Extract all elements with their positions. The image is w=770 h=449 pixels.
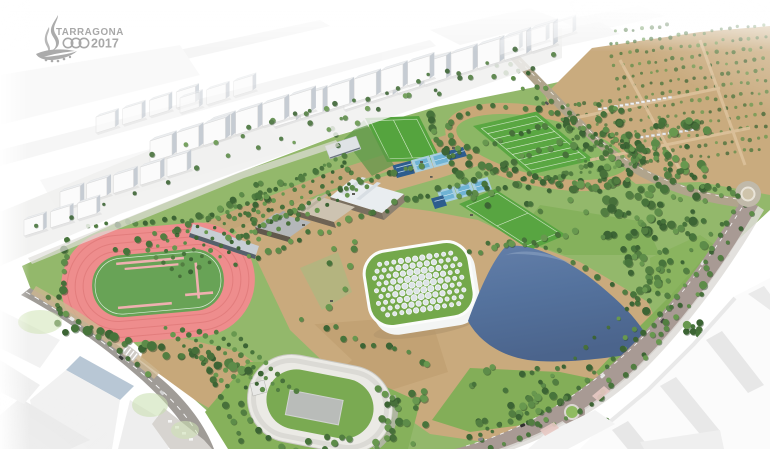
svg-text:2017: 2017 bbox=[91, 37, 119, 51]
